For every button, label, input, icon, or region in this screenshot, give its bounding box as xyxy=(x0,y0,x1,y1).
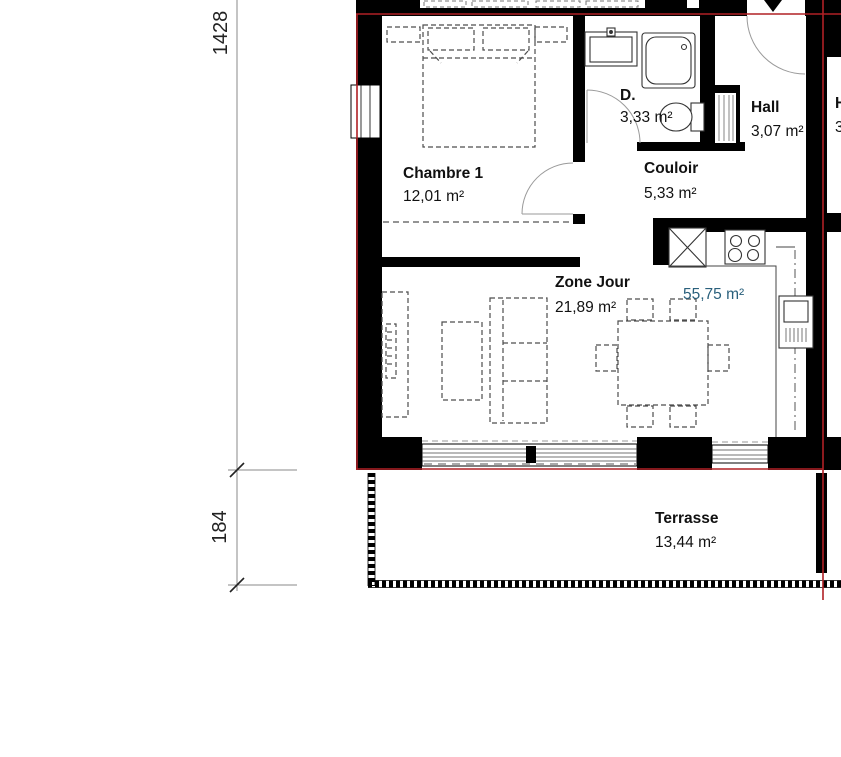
technical-shaft xyxy=(715,93,736,143)
adjacent-unit-area-fragment: 3 xyxy=(835,119,841,137)
room-label-terrasse: Terrasse xyxy=(655,510,718,528)
total-area-label: 55,75 m² xyxy=(683,286,744,304)
chair xyxy=(627,406,653,427)
pillow xyxy=(428,28,474,50)
room-area-hall: 3,07 m² xyxy=(751,123,804,141)
dimension-terrace-depth: 184 xyxy=(209,509,231,545)
coffee-table xyxy=(442,322,482,400)
nightstand xyxy=(535,27,567,42)
room-area-terrasse: 13,44 m² xyxy=(655,534,716,552)
chair xyxy=(627,299,653,320)
sofa xyxy=(490,298,547,423)
room-area-couloir: 5,33 m² xyxy=(644,185,697,203)
chair xyxy=(670,406,696,427)
cooktop xyxy=(725,230,765,264)
dimension-lines xyxy=(228,0,297,592)
chair xyxy=(596,345,617,371)
tv xyxy=(386,324,396,378)
fridge xyxy=(779,296,813,348)
room-label-couloir: Couloir xyxy=(644,160,698,178)
sliding-door-window xyxy=(422,441,637,466)
entrance-door-arc xyxy=(747,16,805,74)
washbasin xyxy=(585,28,637,66)
bedroom-door-arc xyxy=(522,163,573,214)
room-area-chambre1: 12,01 m² xyxy=(403,188,464,206)
terrace-railing xyxy=(368,473,841,588)
bed xyxy=(423,25,535,147)
room-label-chambre1: Chambre 1 xyxy=(403,165,483,183)
adjacent-unit-label-fragment: H xyxy=(835,95,841,113)
room-label-hall: Hall xyxy=(751,99,779,117)
entrance-arrow-icon xyxy=(764,0,782,12)
chair xyxy=(708,345,729,371)
room-label-zone-jour: Zone Jour xyxy=(555,274,630,292)
shower xyxy=(642,33,695,88)
room-label-douche: D. xyxy=(620,87,636,105)
dimension-vertical-total: 1428 xyxy=(210,10,232,56)
room-area-zone-jour: 21,89 m² xyxy=(555,299,616,317)
pillow xyxy=(483,28,529,50)
room-area-douche: 3,33 m² xyxy=(620,109,673,127)
floor-plan-canvas: Chambre 1 12,01 m² D. 3,33 m² Hall 3,07 … xyxy=(0,0,841,757)
kitchen-sink xyxy=(669,228,706,267)
nightstand xyxy=(387,27,420,42)
kitchen-window xyxy=(712,442,768,463)
dining-table xyxy=(618,321,708,405)
left-window xyxy=(351,85,380,138)
floor-plan-drawing xyxy=(0,0,841,757)
